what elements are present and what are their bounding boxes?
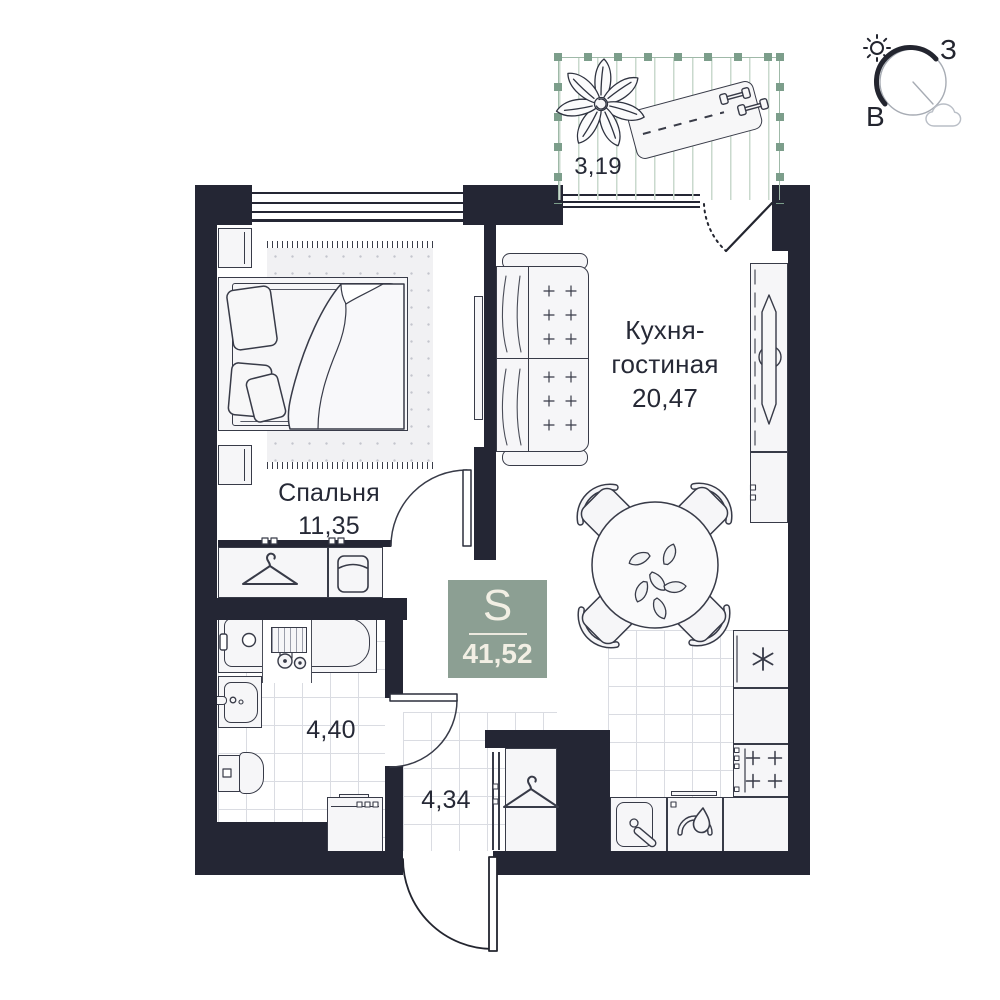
dining-table [592,502,718,628]
hall-wardrobe-door-line [498,752,500,850]
nightstand [218,228,252,268]
toilet-tank [218,755,240,792]
bedroom-name: Спальня [239,477,419,510]
bedroom-label: Спальня 11,35 [239,477,419,543]
sun-icon [864,35,890,61]
hall-wardrobe [505,748,557,852]
wall [195,822,327,852]
wall [788,185,810,875]
floor-plan-page: { "rooms": { "bedroom": { "name": "Спаль… [0,0,1000,1000]
wall [195,185,217,875]
dining-chair [571,477,737,653]
compass-west-label: З [940,34,957,66]
wall [195,598,407,620]
shower-mixer-icon [271,627,307,653]
balcony-door [704,203,772,251]
wall [463,185,563,225]
rug-fringe-bottom [267,462,433,469]
bathroom-area-label: 4,40 [281,716,381,745]
wardrobe [218,547,383,598]
table-plant-icon [629,544,686,619]
wall [485,730,610,748]
counter-unit [723,797,790,852]
wall [493,851,810,875]
wall [484,225,496,447]
bedroom-tv [474,296,483,420]
toilet-bowl [239,752,264,794]
tv-lower-cabinet [750,452,788,523]
hob-unit [733,744,790,797]
tv-cabinet [750,263,788,452]
kitchen-living-area-label: 20,47 [575,381,755,415]
kitchen-living-name-line1: Кухня- [575,313,755,347]
bedroom-window [252,192,463,222]
balcony-area-label: 3,19 [548,153,648,181]
oven-handle [671,791,717,796]
kitchen-unit [733,688,790,744]
balcony-border-dots [554,53,784,61]
wardrobe-divider [327,548,329,597]
compass-east-label: В [866,101,885,133]
entrance-door [403,857,497,951]
mattress-inner-line [240,289,396,422]
oven-unit [667,797,723,852]
kitchen-floor-tiles [608,630,733,797]
wall [195,185,252,225]
hallway-area-label: 4,34 [396,786,496,815]
balcony-border-dots [554,53,562,204]
nightstand-line [244,232,245,264]
balcony-border-dots [776,53,784,204]
kitchen-living-name-line2: гостиная [575,347,755,381]
rug-fringe-top [267,241,433,248]
wall [195,851,403,875]
kitchen-sink-basin [616,802,653,847]
bathroom-sink-basin [224,682,258,723]
wall [557,748,610,852]
compass-dial [876,47,946,115]
cloud-icon [926,104,961,126]
kitchen-living-label: Кухня- гостиная 20,47 [575,313,755,415]
wall [385,620,403,698]
wall [474,447,496,560]
washing-machine-line [331,806,379,807]
badge-area-symbol: S [483,580,512,632]
total-area-badge: S 41,52 [448,580,547,678]
fridge-unit [733,630,790,688]
bedroom-area-label: 11,35 [239,510,419,543]
badge-area-value: 41,52 [462,638,532,670]
badge-divider [469,633,527,635]
